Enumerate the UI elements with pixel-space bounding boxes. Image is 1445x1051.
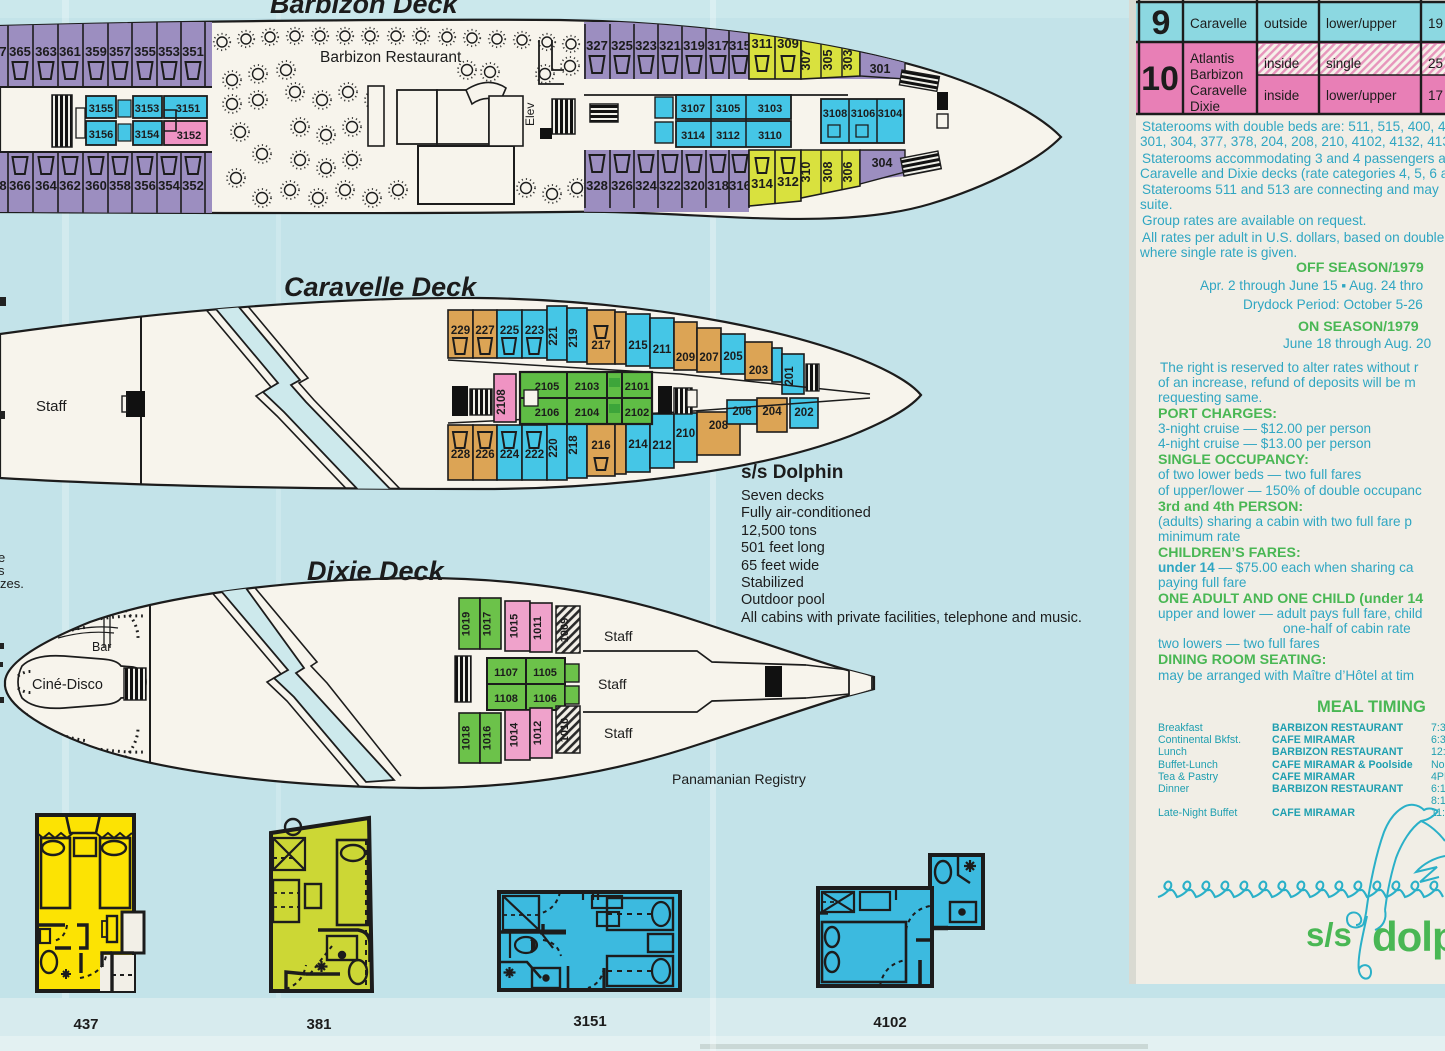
svg-text:4102: 4102 (873, 1014, 906, 1031)
svg-text:1010: 1010 (559, 718, 571, 742)
svg-text:Buffet-Lunch: Buffet-Lunch (1158, 759, 1218, 771)
svg-text:Staff: Staff (604, 628, 633, 644)
svg-text:paying full fare: paying full fare (1158, 575, 1246, 590)
svg-text:362: 362 (59, 178, 81, 193)
svg-text:366: 366 (9, 178, 31, 193)
svg-text:2108: 2108 (496, 389, 508, 415)
svg-text:Noo: Noo (1431, 759, 1445, 771)
svg-text:Drydock Period: October 5-26: Drydock Period: October 5-26 (1243, 297, 1423, 312)
svg-text:215: 215 (628, 340, 648, 352)
svg-text:Caravelle Deck: Caravelle Deck (284, 272, 478, 302)
svg-text:3105: 3105 (716, 103, 740, 115)
svg-text:3112: 3112 (716, 130, 740, 142)
svg-text:of two lower beds — two full f: of two lower beds — two full fares (1158, 467, 1361, 482)
svg-text:7:30: 7:30 (1431, 722, 1445, 734)
svg-text:1009: 1009 (559, 618, 571, 642)
svg-text:Continental Bkfst.: Continental Bkfst. (1158, 734, 1241, 746)
svg-text:201: 201 (784, 366, 796, 386)
svg-text:326: 326 (611, 178, 633, 193)
svg-text:321: 321 (659, 38, 681, 53)
svg-text:3151: 3151 (573, 1013, 606, 1030)
svg-text:s/s Dolphin: s/s Dolphin (741, 462, 843, 483)
svg-text:CHILDREN’S FARES:: CHILDREN’S FARES: (1158, 545, 1301, 561)
svg-text:(adults) sharing a cabin with: (adults) sharing a cabin with two full f… (1158, 514, 1412, 529)
svg-text:2104: 2104 (575, 407, 600, 419)
svg-text:3108: 3108 (823, 108, 847, 120)
svg-text:Late-Night Buffet: Late-Night Buffet (1158, 807, 1237, 819)
svg-text:zes.: zes. (0, 576, 24, 591)
svg-text:8:15: 8:15 (1431, 795, 1445, 807)
svg-text:3156: 3156 (89, 129, 113, 141)
svg-text:CAFE MIRAMAR & Poolside: CAFE MIRAMAR & Poolside (1272, 759, 1413, 771)
svg-text:under 14 — $75.00 each when sh: under 14 — $75.00 each when sharing ca (1158, 560, 1414, 575)
svg-text:228: 228 (451, 449, 471, 461)
svg-text:225: 225 (500, 325, 520, 337)
svg-text:2102: 2102 (625, 407, 649, 419)
svg-text:3153: 3153 (135, 103, 159, 115)
svg-text:3106: 3106 (851, 108, 875, 120)
svg-text:Dixie Deck: Dixie Deck (307, 556, 446, 586)
svg-text:224: 224 (500, 449, 520, 461)
svg-text:218: 218 (568, 435, 580, 455)
svg-text:inside: inside (1264, 88, 1299, 103)
svg-text:365: 365 (9, 44, 31, 59)
svg-text:221: 221 (548, 326, 560, 346)
svg-text:Staff: Staff (598, 676, 627, 692)
svg-text:217: 217 (591, 340, 610, 352)
svg-text:All rates per adult in U.S. do: All rates per adult in U.S. dollars, bas… (1142, 230, 1444, 245)
svg-text:3104: 3104 (878, 108, 903, 120)
svg-text:207: 207 (699, 352, 718, 364)
svg-text:301: 301 (870, 62, 891, 76)
svg-text:1105: 1105 (533, 667, 557, 679)
svg-text:Elev: Elev (523, 103, 537, 126)
svg-text:Caravelle and Dixie decks (rat: Caravelle and Dixie decks (rate categori… (1140, 166, 1445, 181)
svg-text:Caravelle: Caravelle (1190, 83, 1247, 98)
svg-text:3103: 3103 (758, 103, 782, 115)
svg-text:202: 202 (794, 407, 813, 419)
svg-text:3151: 3151 (176, 103, 200, 115)
svg-text:356: 356 (134, 178, 156, 193)
svg-text:10: 10 (1141, 60, 1179, 98)
svg-text:304: 304 (872, 156, 893, 170)
svg-text:of an increase, refund of depo: of an increase, refund of deposits will … (1158, 375, 1416, 390)
svg-text:327: 327 (586, 38, 608, 53)
svg-text:219: 219 (568, 328, 580, 347)
svg-text:355: 355 (134, 44, 156, 59)
svg-text:17: 17 (1428, 88, 1443, 103)
svg-text:357: 357 (109, 44, 131, 59)
svg-text:of upper/lower — 150% of doubl: of upper/lower — 150% of double occupanc (1158, 483, 1422, 498)
svg-text:3155: 3155 (89, 103, 113, 115)
svg-text:328: 328 (586, 178, 608, 193)
svg-text:Dixie: Dixie (1190, 99, 1220, 114)
svg-text:CAFE MIRAMAR: CAFE MIRAMAR (1272, 734, 1355, 746)
svg-text:1108: 1108 (494, 693, 518, 705)
svg-text:226: 226 (475, 449, 494, 461)
svg-text:306: 306 (841, 162, 855, 183)
svg-text:The right is reserved to alter: The right is reserved to alter rates wit… (1160, 360, 1419, 375)
svg-text:314: 314 (751, 176, 773, 191)
svg-text:upper and lower — adult pays f: upper and lower — adult pays full fare, … (1158, 606, 1422, 621)
svg-text:211: 211 (653, 344, 672, 356)
svg-text:308: 308 (821, 162, 835, 183)
svg-text:305: 305 (821, 50, 835, 71)
svg-text:Dinner: Dinner (1158, 783, 1190, 795)
svg-text:325: 325 (611, 38, 633, 53)
svg-text:minimum rate: minimum rate (1158, 529, 1240, 544)
svg-text:352: 352 (182, 178, 204, 193)
svg-text:216: 216 (591, 440, 610, 452)
svg-text:7: 7 (0, 44, 7, 59)
svg-text:12:3: 12:3 (1431, 746, 1445, 758)
svg-text:s/s: s/s (1306, 916, 1352, 953)
svg-text:Stabilized: Stabilized (741, 575, 804, 591)
svg-text:358: 358 (109, 178, 131, 193)
svg-text:6:15: 6:15 (1431, 783, 1445, 795)
svg-text:320: 320 (683, 178, 705, 193)
svg-text:Staff: Staff (36, 398, 67, 415)
svg-text:Staff: Staff (604, 725, 633, 741)
svg-text:317: 317 (707, 38, 729, 53)
svg-text:209: 209 (676, 352, 695, 364)
svg-text:204: 204 (762, 406, 782, 418)
svg-text:323: 323 (635, 38, 657, 53)
svg-text:Caravelle: Caravelle (1190, 16, 1247, 31)
svg-text:Seven decks: Seven decks (741, 488, 824, 504)
svg-text:OFF SEASON/1979: OFF SEASON/1979 (1296, 260, 1424, 276)
svg-text:Panamanian Registry: Panamanian Registry (672, 771, 806, 787)
svg-text:Tea & Pastry: Tea & Pastry (1158, 771, 1219, 783)
svg-text:MEAL TIMING: MEAL TIMING (1317, 698, 1426, 716)
svg-text:9: 9 (1152, 4, 1171, 42)
svg-text:316: 316 (729, 178, 751, 193)
svg-text:Apr. 2 through June 15 ▪ Aug.: Apr. 2 through June 15 ▪ Aug. 24 thro (1200, 278, 1423, 293)
svg-text:311: 311 (752, 36, 773, 51)
svg-text:312: 312 (777, 174, 799, 189)
svg-text:307: 307 (799, 50, 813, 71)
svg-text:3110: 3110 (758, 130, 782, 142)
svg-text:BARBIZON RESTAURANT: BARBIZON RESTAURANT (1272, 746, 1404, 758)
svg-text:All cabins with private facili: All cabins with private facilities, tele… (741, 610, 1082, 626)
svg-text:322: 322 (659, 178, 681, 193)
svg-text:Staterooms accommodating 3 and: Staterooms accommodating 3 and 4 passeng… (1142, 151, 1445, 166)
svg-text:203: 203 (749, 365, 768, 377)
svg-text:361: 361 (59, 44, 81, 59)
svg-text:2103: 2103 (575, 381, 599, 393)
svg-text:2106: 2106 (535, 407, 559, 419)
svg-text:BARBIZON RESTAURANT: BARBIZON RESTAURANT (1272, 722, 1404, 734)
svg-text:Bar: Bar (92, 640, 111, 654)
svg-text:Lunch: Lunch (1158, 746, 1187, 758)
svg-text:319: 319 (683, 38, 705, 53)
svg-text:303: 303 (841, 50, 855, 71)
svg-text:two lowers — two full fares: two lowers — two full fares (1158, 636, 1320, 651)
svg-text:220: 220 (548, 438, 560, 457)
svg-text:4PM: 4PM (1431, 771, 1445, 783)
svg-text:1106: 1106 (533, 693, 557, 705)
svg-text:8: 8 (0, 178, 7, 193)
svg-text:Barbizon Deck: Barbizon Deck (270, 0, 460, 19)
svg-text:Breakfast: Breakfast (1158, 722, 1203, 734)
svg-text:65 feet wide: 65 feet wide (741, 558, 819, 574)
svg-text:1012: 1012 (532, 721, 544, 745)
svg-text:ON SEASON/1979: ON SEASON/1979 (1298, 319, 1419, 335)
svg-text:205: 205 (723, 351, 743, 363)
svg-text:229: 229 (451, 325, 470, 337)
svg-text:363: 363 (35, 44, 57, 59)
svg-text:2101: 2101 (625, 381, 649, 393)
svg-text:324: 324 (635, 178, 657, 193)
svg-text:lower/upper: lower/upper (1326, 16, 1397, 31)
svg-text:318: 318 (707, 178, 729, 193)
svg-text:360: 360 (85, 178, 107, 193)
svg-text:Barbizon Restaurant: Barbizon Restaurant (320, 49, 462, 66)
svg-text:19: 19 (1428, 16, 1443, 31)
svg-text:Staterooms with double beds ar: Staterooms with double beds are: 511, 51… (1142, 119, 1445, 134)
svg-text:12,500 tons: 12,500 tons (741, 523, 817, 539)
svg-text:354: 354 (158, 178, 180, 193)
svg-text:inside: inside (1264, 56, 1299, 71)
svg-text:where single rate is given.: where single rate is given. (1139, 245, 1297, 260)
svg-text:1019: 1019 (461, 612, 473, 636)
svg-text:Fully air-conditioned: Fully air-conditioned (741, 505, 871, 521)
svg-text:1016: 1016 (482, 726, 494, 750)
svg-text:222: 222 (525, 449, 544, 461)
svg-text:437: 437 (73, 1016, 98, 1033)
svg-text:315: 315 (729, 38, 751, 53)
svg-text:Ciné-Disco: Ciné-Disco (32, 677, 103, 693)
svg-text:3114: 3114 (681, 130, 706, 142)
svg-text:1014: 1014 (509, 722, 521, 747)
svg-text:Barbizon: Barbizon (1190, 67, 1243, 82)
svg-text:501 feet long: 501 feet long (741, 540, 825, 556)
svg-text:301, 304, 377, 378, 204, 208,: 301, 304, 377, 378, 204, 208, 210, 4102,… (1140, 134, 1445, 149)
svg-text:CAFE MIRAMAR: CAFE MIRAMAR (1272, 807, 1355, 819)
svg-text:3107: 3107 (681, 103, 705, 115)
svg-text:3-night cruise — $12.00 per pe: 3-night cruise — $12.00 per person (1158, 421, 1371, 436)
svg-text:359: 359 (85, 44, 107, 59)
svg-text:ONE ADULT AND ONE CHILD (under: ONE ADULT AND ONE CHILD (under 14 (1158, 591, 1423, 607)
svg-text:June 18 through Aug. 20: June 18 through Aug. 20 (1283, 336, 1432, 351)
svg-text:227: 227 (475, 325, 494, 337)
svg-text:DINING ROOM SEATING:: DINING ROOM SEATING: (1158, 652, 1326, 668)
svg-text:351: 351 (182, 44, 204, 59)
svg-text:310: 310 (799, 162, 813, 183)
svg-text:210: 210 (676, 428, 695, 440)
svg-text:SINGLE OCCUPANCY:: SINGLE OCCUPANCY: (1158, 452, 1309, 468)
svg-text:Outdoor pool: Outdoor pool (741, 592, 825, 608)
svg-text:1107: 1107 (494, 667, 518, 679)
svg-text:1011: 1011 (532, 616, 544, 640)
svg-text:suite.: suite. (1140, 197, 1173, 212)
svg-text:381: 381 (306, 1016, 331, 1033)
svg-text:PORT CHARGES:: PORT CHARGES: (1158, 406, 1277, 422)
svg-text:one-half of cabin rate: one-half of cabin rate (1283, 621, 1411, 636)
svg-text:lower/upper: lower/upper (1326, 88, 1397, 103)
svg-text:requesting same.: requesting same. (1158, 390, 1262, 405)
svg-text:Group rates are available on r: Group rates are available on request. (1142, 213, 1366, 228)
svg-text:3152: 3152 (177, 130, 201, 142)
svg-text:1017: 1017 (482, 612, 494, 636)
svg-text:25: 25 (1428, 56, 1443, 71)
svg-text:3rd and 4th PERSON:: 3rd and 4th PERSON: (1158, 499, 1303, 515)
svg-text:1018: 1018 (461, 726, 473, 750)
svg-text:Staterooms 511 and 513 are con: Staterooms 511 and 513 are connecting an… (1142, 182, 1439, 197)
svg-text:BARBIZON RESTAURANT: BARBIZON RESTAURANT (1272, 783, 1404, 795)
svg-text:4-night cruise — $13.00 per pe: 4-night cruise — $13.00 per person (1158, 436, 1371, 451)
svg-text:208: 208 (709, 420, 729, 432)
svg-text:6:30: 6:30 (1431, 734, 1445, 746)
svg-text:CAFE MIRAMAR: CAFE MIRAMAR (1272, 771, 1355, 783)
svg-text:Atlantis: Atlantis (1190, 51, 1235, 66)
svg-text:214: 214 (628, 439, 648, 451)
svg-text:364: 364 (35, 178, 57, 193)
svg-text:single: single (1326, 56, 1361, 71)
svg-text:may be arranged with Maître d’: may be arranged with Maître d’Hôtel at t… (1158, 668, 1414, 683)
svg-text:1015: 1015 (509, 614, 521, 638)
svg-text:353: 353 (158, 44, 180, 59)
svg-text:3154: 3154 (135, 129, 160, 141)
svg-text:outside: outside (1264, 16, 1308, 31)
svg-text:dolphi: dolphi (1372, 913, 1445, 960)
svg-text:212: 212 (652, 440, 671, 452)
svg-text:223: 223 (525, 325, 544, 337)
